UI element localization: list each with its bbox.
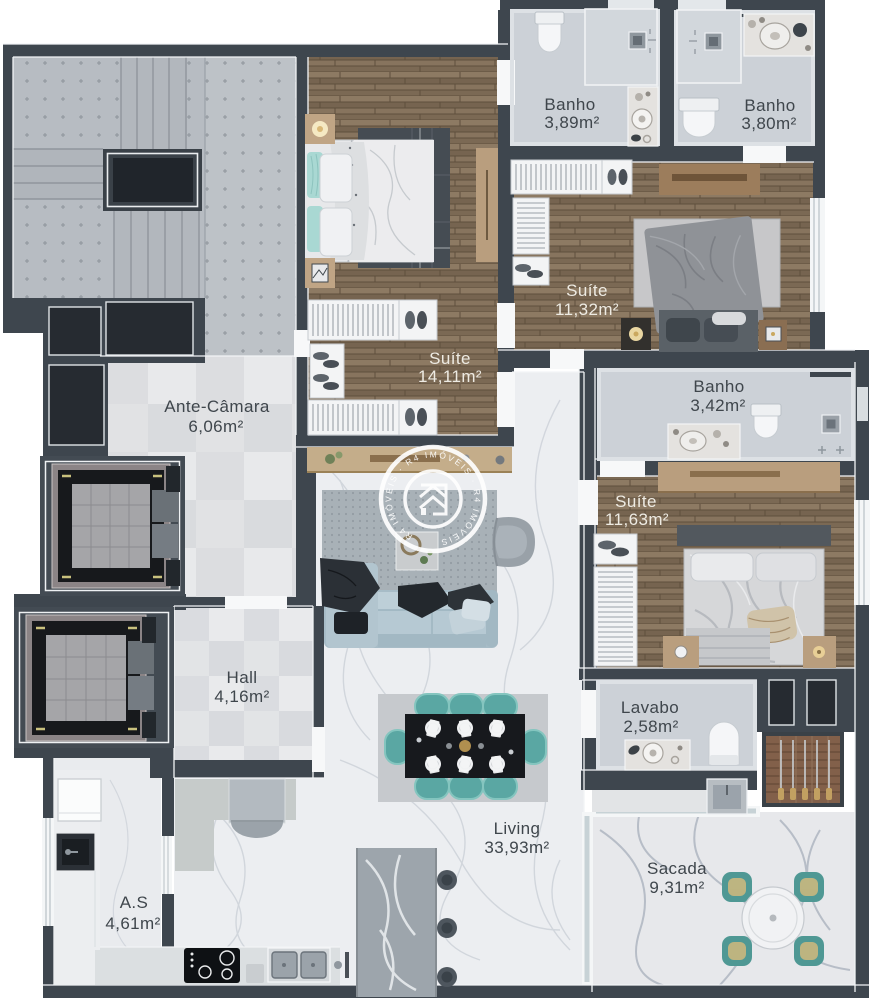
svg-text:A.S: A.S: [120, 893, 149, 912]
svg-text:6,06m²: 6,06m²: [188, 417, 243, 436]
svg-text:3,89m²: 3,89m²: [544, 113, 599, 132]
svg-text:Sacada: Sacada: [647, 859, 707, 878]
svg-text:Banho: Banho: [544, 95, 595, 114]
svg-text:Suíte: Suíte: [429, 349, 471, 368]
svg-text:33,93m²: 33,93m²: [484, 838, 549, 857]
svg-text:9,31m²: 9,31m²: [649, 878, 704, 897]
svg-text:Ante-Câmara: Ante-Câmara: [164, 397, 270, 416]
svg-text:14,11m²: 14,11m²: [418, 367, 482, 386]
svg-text:11,63m²: 11,63m²: [605, 510, 669, 529]
svg-text:2,58m²: 2,58m²: [623, 717, 678, 736]
svg-text:3,80m²: 3,80m²: [741, 114, 796, 133]
svg-text:4,16m²: 4,16m²: [214, 687, 269, 706]
svg-text:Living: Living: [494, 819, 541, 838]
svg-text:Hall: Hall: [227, 668, 258, 687]
svg-text:11,32m²: 11,32m²: [555, 300, 619, 319]
svg-text:Banho: Banho: [744, 96, 795, 115]
svg-text:3,42m²: 3,42m²: [690, 396, 745, 415]
svg-text:Suíte: Suíte: [566, 281, 608, 300]
svg-text:Suíte: Suíte: [615, 492, 657, 511]
svg-text:4,61m²: 4,61m²: [105, 914, 160, 933]
svg-text:Banho: Banho: [693, 377, 744, 396]
svg-text:Lavabo: Lavabo: [621, 698, 679, 717]
